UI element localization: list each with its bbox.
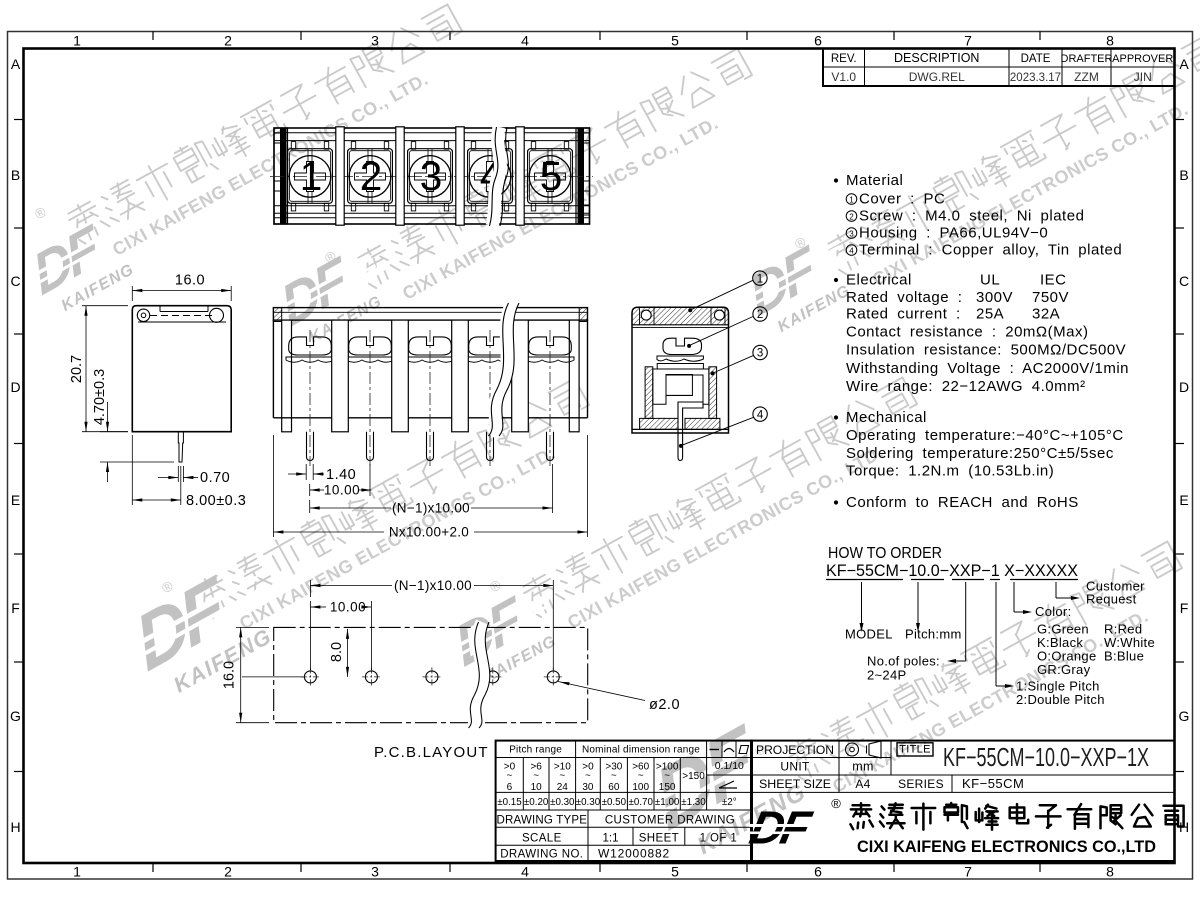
svg-text:±0.30: ±0.30: [550, 797, 575, 808]
svg-text:±0.50: ±0.50: [602, 797, 627, 808]
svg-text:SHEET SIZE: SHEET SIZE: [759, 777, 831, 791]
svg-text:5: 5: [540, 153, 563, 199]
svg-text:JIN: JIN: [1134, 70, 1152, 84]
svg-text:Nx10.00+2.0: Nx10.00+2.0: [389, 525, 469, 540]
svg-text:ZZM: ZZM: [1074, 70, 1099, 84]
svg-text:B: B: [11, 167, 20, 183]
svg-text:4: 4: [521, 864, 529, 880]
svg-text:2: 2: [224, 33, 232, 49]
svg-text:B: B: [1179, 167, 1188, 183]
svg-text:DRAFTER: DRAFTER: [1061, 53, 1113, 65]
svg-text:2:Double Pitch: 2:Double Pitch: [1016, 692, 1105, 707]
svg-text:3: 3: [420, 153, 443, 199]
svg-text:3: 3: [371, 864, 379, 880]
svg-text:Request: Request: [1086, 592, 1137, 607]
svg-text:~: ~: [638, 771, 644, 782]
svg-text:5: 5: [671, 33, 679, 49]
svg-text:Screw : M4.0 steel, Ni plated: Screw : M4.0 steel, Ni plated: [859, 208, 1084, 225]
svg-text:8: 8: [1106, 864, 1114, 880]
svg-text:Material: Material: [846, 172, 903, 189]
svg-text:±0.20: ±0.20: [524, 797, 549, 808]
svg-text:16.0: 16.0: [175, 273, 205, 289]
svg-text:H: H: [10, 819, 20, 835]
svg-text:C: C: [10, 273, 20, 289]
svg-text:Withstanding Voltage : AC2000V: Withstanding Voltage : AC2000V/1min: [846, 360, 1129, 377]
svg-text:Pitch:mm: Pitch:mm: [905, 627, 962, 642]
svg-text:8.0: 8.0: [329, 642, 345, 662]
svg-text:2~24P: 2~24P: [867, 668, 906, 683]
svg-text:±0.70: ±0.70: [628, 797, 653, 808]
svg-text:KF−55CM−10.0−XXP−1X: KF−55CM−10.0−XXP−1X: [943, 742, 1149, 772]
svg-text:GR:Gray: GR:Gray: [1037, 662, 1091, 677]
svg-text:±0.15: ±0.15: [497, 797, 522, 808]
svg-text:Soldering temperature:250°C±5/: Soldering temperature:250°C±5/5sec: [846, 445, 1114, 462]
svg-text:1: 1: [849, 196, 854, 205]
svg-text:Contact resistance : 20mΩ(Max): Contact resistance : 20mΩ(Max): [846, 324, 1088, 341]
svg-text:10: 10: [531, 782, 543, 793]
svg-text:2023.3.17: 2023.3.17: [1010, 72, 1061, 84]
svg-text:D: D: [10, 379, 20, 395]
svg-text:7: 7: [964, 864, 972, 880]
svg-text:A: A: [11, 56, 21, 72]
svg-text:±1.00: ±1.00: [655, 797, 680, 808]
svg-text:1 OF 1: 1 OF 1: [700, 832, 738, 844]
svg-text:A4: A4: [855, 777, 870, 791]
svg-text:3: 3: [757, 348, 763, 360]
svg-text:150: 150: [659, 782, 676, 793]
svg-text:4: 4: [849, 247, 854, 256]
svg-text:MODEL: MODEL: [845, 627, 893, 642]
svg-text:±0.30: ±0.30: [576, 797, 601, 808]
svg-text:1.40: 1.40: [326, 467, 356, 483]
svg-text:25A: 25A: [976, 306, 1004, 323]
svg-text:Torque: 1.2N.m (10.53Lb.in): Torque: 1.2N.m (10.53Lb.in): [846, 463, 1054, 480]
svg-text:SERIES: SERIES: [898, 777, 944, 791]
svg-text:3: 3: [849, 230, 854, 239]
svg-text:~: ~: [664, 771, 670, 782]
svg-text:G: G: [10, 708, 21, 724]
svg-text:10.00: 10.00: [330, 599, 366, 614]
svg-text:2: 2: [224, 864, 232, 880]
svg-text:Rated current :: Rated current :: [846, 306, 961, 323]
svg-text:1: 1: [73, 33, 81, 49]
svg-text:No.of poles:: No.of poles:: [867, 654, 940, 669]
svg-text:®: ®: [831, 796, 841, 811]
svg-text:16.0: 16.0: [222, 661, 238, 689]
svg-text:~: ~: [533, 771, 539, 782]
svg-text:>150: >150: [682, 771, 705, 782]
svg-text:SHEET: SHEET: [639, 832, 679, 844]
svg-text:Wire range: 22−12AWG 4.0mm²: Wire range: 22−12AWG 4.0mm²: [846, 378, 1086, 395]
svg-text:CUSTOMER DRAWING: CUSTOMER DRAWING: [605, 815, 735, 827]
svg-text:Electrical: Electrical: [846, 272, 912, 289]
svg-text:A: A: [1179, 56, 1189, 72]
svg-text:F: F: [1180, 600, 1189, 616]
svg-text:F: F: [11, 600, 20, 616]
svg-text:UNIT: UNIT: [780, 760, 810, 774]
svg-text:±1.30: ±1.30: [681, 797, 706, 808]
svg-text:KF−55CM: KF−55CM: [962, 776, 1024, 791]
svg-text:W12000882: W12000882: [598, 847, 670, 861]
svg-text:±2°: ±2°: [722, 797, 737, 808]
svg-text:Terminal : Copper alloy, Tin p: Terminal : Copper alloy, Tin plated: [859, 242, 1122, 259]
svg-text:3: 3: [371, 33, 379, 49]
svg-text:5: 5: [671, 864, 679, 880]
svg-text:6: 6: [814, 33, 822, 49]
svg-text:E: E: [1179, 492, 1188, 508]
svg-text:4: 4: [757, 409, 764, 421]
svg-text:Insulation resistance: 500MΩ/D: Insulation resistance: 500MΩ/DC500V: [846, 342, 1126, 359]
svg-text:CIXI KAIFENG ELECTRONICS CO.,L: CIXI KAIFENG ELECTRONICS CO.,LTD: [857, 837, 1156, 856]
svg-text:DATE: DATE: [1021, 53, 1051, 65]
svg-text:100: 100: [632, 782, 649, 793]
svg-text:Pitch range: Pitch range: [509, 745, 562, 756]
svg-text:DRAWING TYPE: DRAWING TYPE: [497, 815, 588, 827]
svg-text:6: 6: [507, 782, 513, 793]
svg-text:Operating temperature:−40°C~+1: Operating temperature:−40°C~+105°C: [846, 427, 1124, 444]
svg-text:(N−1)x10.00: (N−1)x10.00: [392, 501, 470, 516]
svg-text:DRAWING NO.: DRAWING NO.: [500, 849, 583, 861]
svg-text:2: 2: [849, 213, 854, 222]
svg-text:PROJECTION: PROJECTION: [756, 743, 834, 757]
svg-text:D: D: [1179, 379, 1189, 395]
svg-text:32A: 32A: [1032, 306, 1060, 323]
svg-text:REV.: REV.: [831, 53, 857, 65]
svg-text:10.00: 10.00: [324, 482, 360, 497]
svg-text:2: 2: [757, 309, 763, 321]
svg-text:1: 1: [300, 153, 323, 199]
svg-text:60: 60: [608, 782, 620, 793]
svg-text:mm: mm: [852, 760, 873, 774]
svg-text:ø2.0: ø2.0: [649, 697, 680, 713]
svg-text:Conform to REACH and RoHS: Conform to REACH and RoHS: [846, 494, 1079, 511]
svg-text:24: 24: [557, 782, 569, 793]
svg-text:7: 7: [964, 33, 972, 49]
svg-text:4: 4: [521, 33, 529, 49]
svg-text:20.7: 20.7: [69, 355, 85, 383]
svg-text:1: 1: [757, 273, 763, 285]
svg-text:(N−1)x10.00: (N−1)x10.00: [394, 578, 472, 593]
svg-text:1:1: 1:1: [603, 832, 619, 844]
svg-text:Housing : PA66,UL94V−0: Housing : PA66,UL94V−0: [859, 225, 1048, 242]
svg-text:SCALE: SCALE: [522, 832, 562, 844]
svg-text:1: 1: [73, 864, 81, 880]
svg-text:C: C: [1179, 273, 1189, 289]
svg-text:~: ~: [611, 771, 617, 782]
svg-text:~: ~: [507, 771, 513, 782]
svg-text:IEC: IEC: [1040, 272, 1067, 289]
svg-text:APPROVER: APPROVER: [1112, 53, 1173, 65]
svg-text:G: G: [1179, 708, 1190, 724]
svg-text:Rated voltage :: Rated voltage :: [846, 289, 962, 306]
svg-text:Cover : PC: Cover : PC: [859, 191, 945, 208]
svg-text:Color:: Color:: [1035, 604, 1071, 619]
svg-text:UL: UL: [980, 272, 1000, 289]
svg-text:V1.0: V1.0: [831, 70, 856, 84]
svg-text:KF−55CM−10.0−XXP−1 X−XXXXX: KF−55CM−10.0−XXP−1 X−XXXXX: [826, 562, 1078, 580]
svg-text:~: ~: [559, 771, 565, 782]
svg-text:4.70±0.3: 4.70±0.3: [92, 369, 108, 425]
svg-text:Mechanical: Mechanical: [846, 409, 927, 426]
svg-text:P.C.B.LAYOUT: P.C.B.LAYOUT: [374, 744, 489, 761]
svg-text:2: 2: [360, 153, 383, 199]
svg-text:DESCRIPTION: DESCRIPTION: [894, 51, 979, 65]
svg-text:300V: 300V: [976, 289, 1013, 306]
svg-text:0.1/10: 0.1/10: [715, 760, 744, 772]
svg-text:8: 8: [1106, 33, 1114, 49]
svg-text:Nominal dimension range: Nominal dimension range: [582, 745, 700, 756]
svg-text:E: E: [11, 492, 20, 508]
svg-text:8.00±0.3: 8.00±0.3: [186, 493, 246, 509]
svg-text:DWG.REL: DWG.REL: [909, 70, 965, 84]
svg-text:0.70: 0.70: [200, 470, 230, 486]
svg-text:B:Blue: B:Blue: [1104, 649, 1144, 664]
svg-text:~: ~: [585, 771, 591, 782]
svg-text:TITLE: TITLE: [899, 744, 930, 756]
svg-text:6: 6: [814, 864, 822, 880]
svg-text:HOW TO ORDER: HOW TO ORDER: [828, 545, 942, 562]
svg-text:750V: 750V: [1032, 289, 1069, 306]
svg-text:30: 30: [582, 782, 594, 793]
